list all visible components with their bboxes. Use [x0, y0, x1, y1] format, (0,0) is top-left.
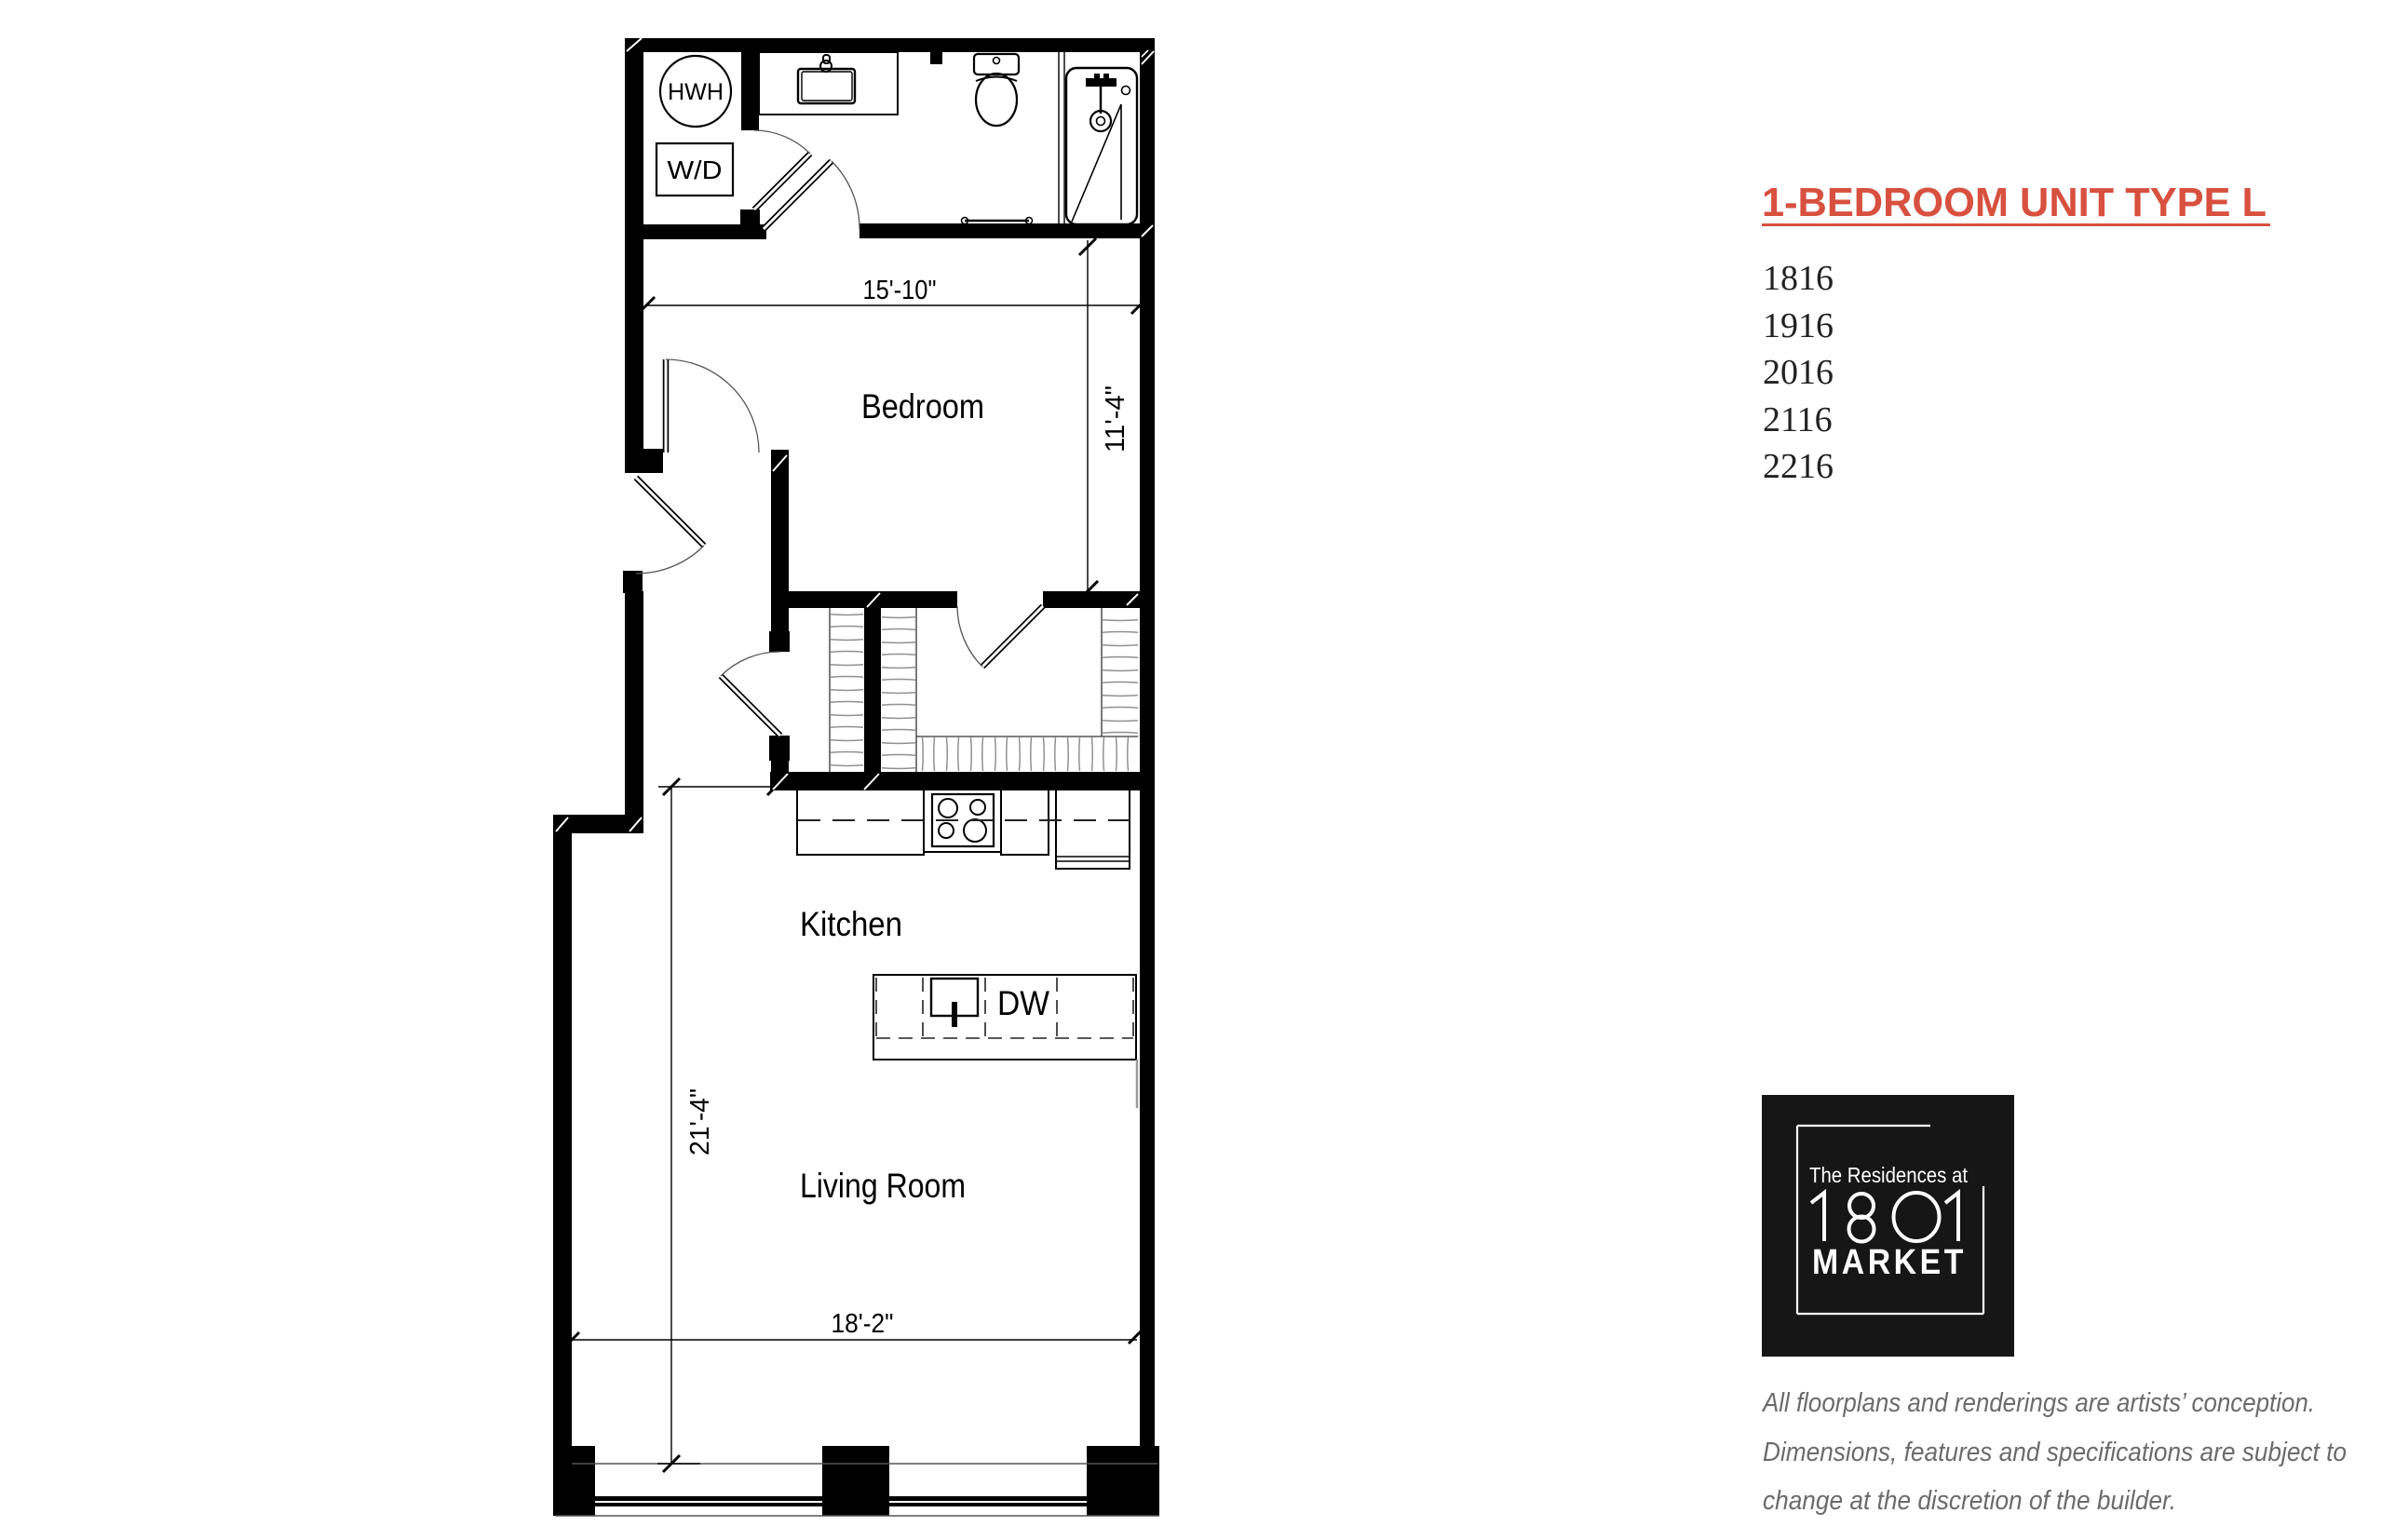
svg-text:2016: 2016 — [1763, 353, 1834, 392]
svg-text:1816: 1816 — [1763, 259, 1834, 298]
svg-text:Bedroom: Bedroom — [861, 387, 984, 426]
svg-text:1916: 1916 — [1763, 306, 1834, 345]
svg-text:18'-2": 18'-2" — [832, 1309, 894, 1339]
svg-text:Dimensions, features and speci: Dimensions, features and specifications … — [1763, 1438, 2347, 1467]
svg-text:2116: 2116 — [1763, 400, 1833, 439]
svg-text:change at the discretion of th: change at the discretion of the builder. — [1763, 1486, 2176, 1516]
svg-text:2216: 2216 — [1763, 447, 1834, 486]
svg-text:21'-4": 21'-4" — [685, 1088, 715, 1155]
svg-text:The Residences at: The Residences at — [1809, 1163, 1969, 1187]
svg-text:11'-4": 11'-4" — [1101, 385, 1130, 453]
svg-text:Living Room: Living Room — [800, 1167, 966, 1205]
svg-text:1-BEDROOM UNIT TYPE L: 1-BEDROOM UNIT TYPE L — [1762, 180, 2267, 225]
svg-text:MARKET: MARKET — [1812, 1243, 1967, 1282]
svg-text:15'-10": 15'-10" — [863, 276, 937, 305]
svg-text:Kitchen: Kitchen — [800, 905, 902, 943]
svg-text:All floorplans and renderings: All floorplans and renderings are artist… — [1761, 1388, 2315, 1418]
svg-text:DW: DW — [997, 984, 1049, 1022]
svg-text:W/D: W/D — [668, 155, 723, 184]
svg-text:HWH: HWH — [668, 79, 724, 105]
